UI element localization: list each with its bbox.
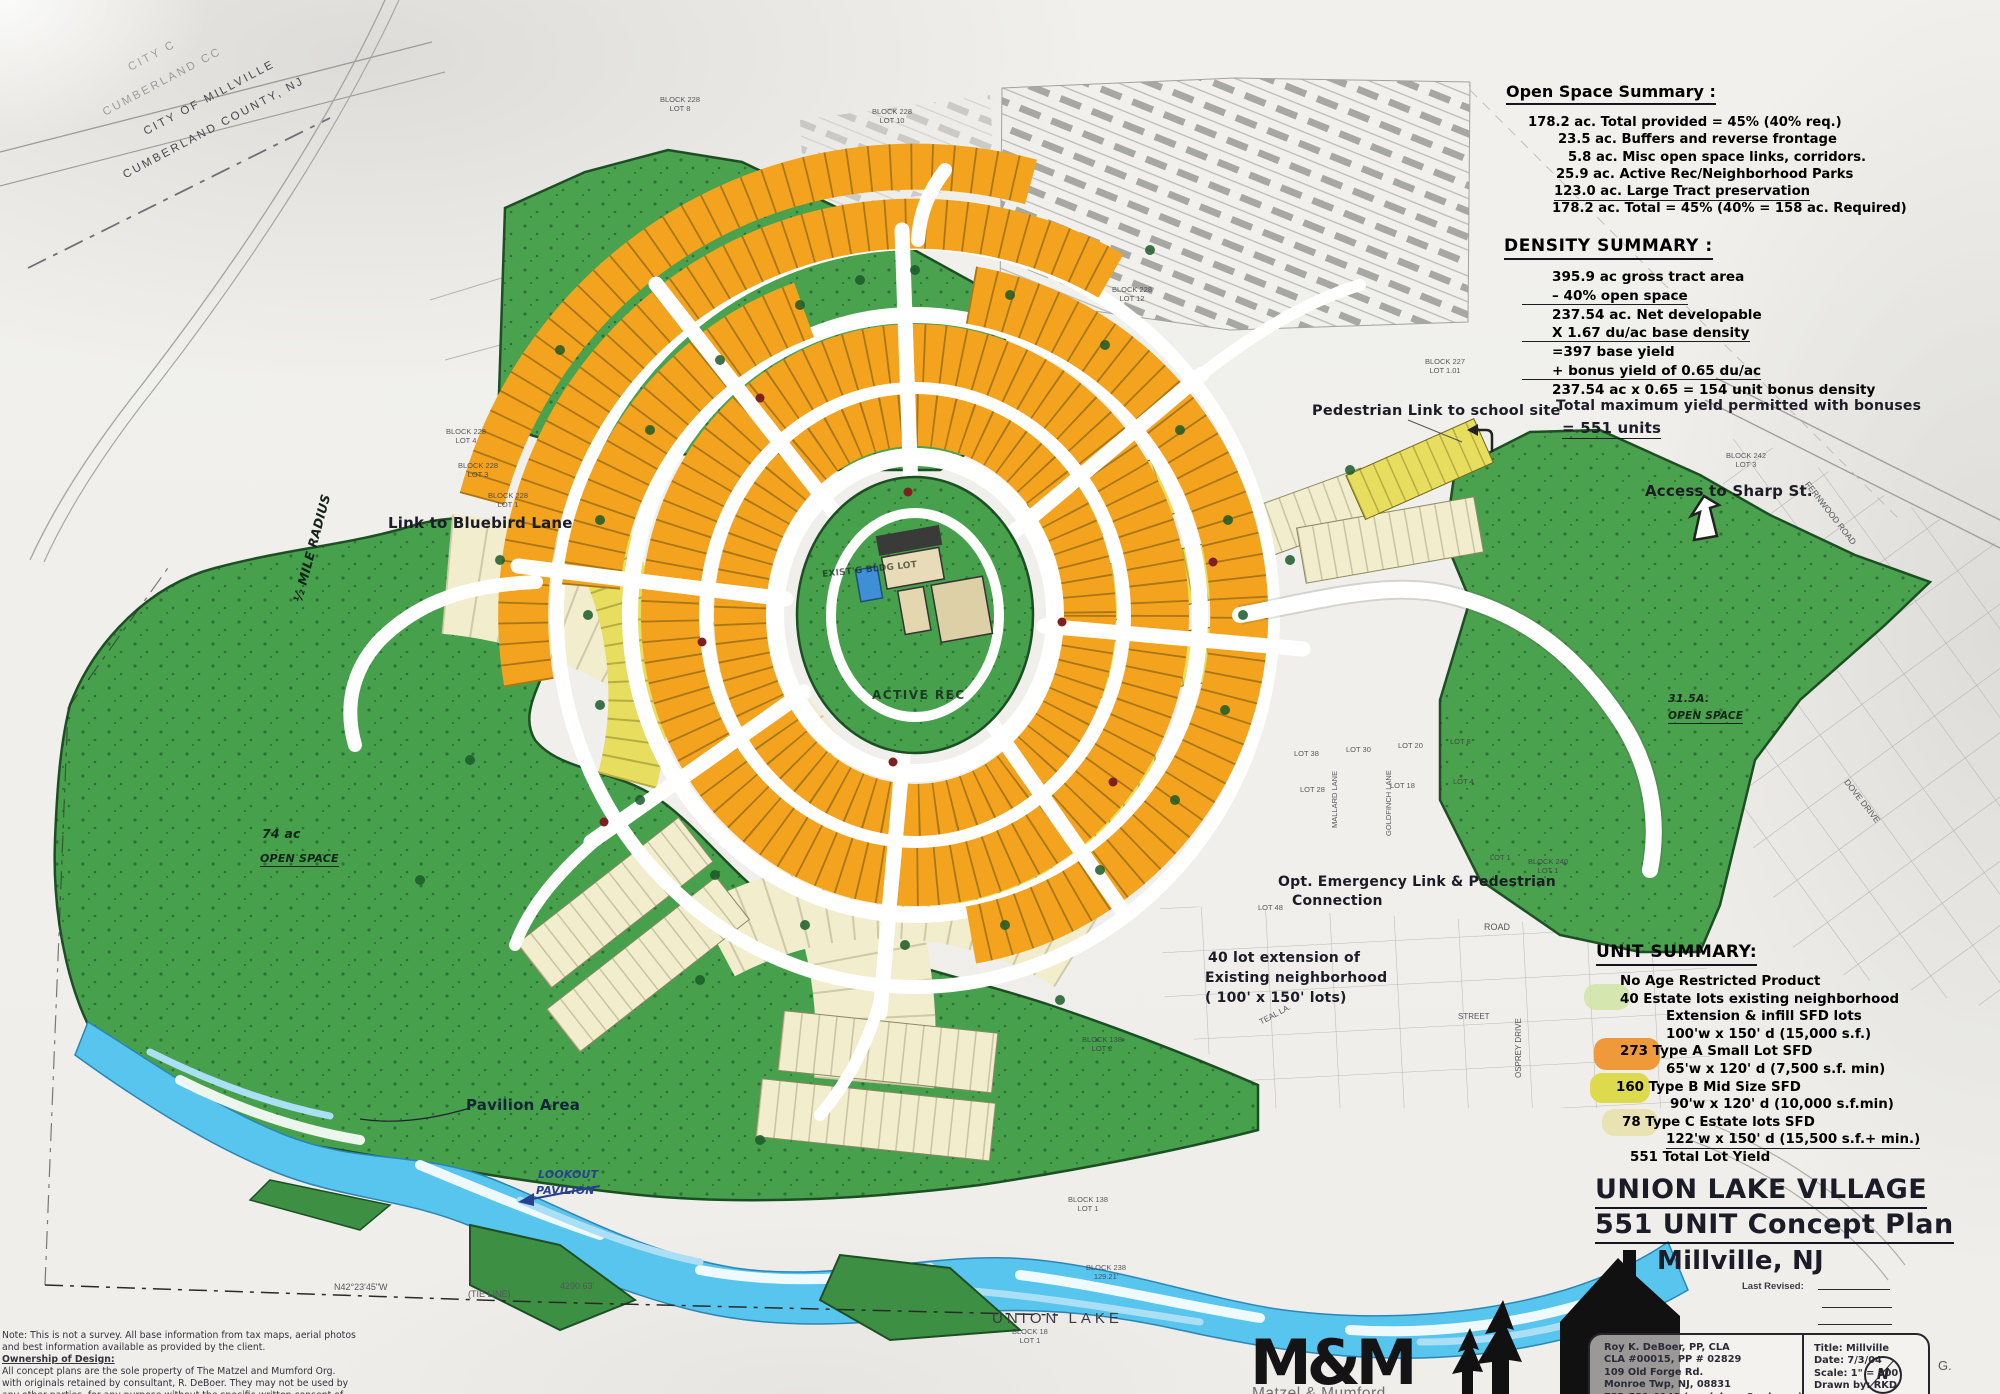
label-74ac: 74 ac (262, 826, 301, 841)
density-line: 395.9 ac gross tract area (1552, 268, 1875, 287)
block-lot-label: BLOCK 138LOT 1 (1068, 1196, 1108, 1213)
block-lot-label: BLOCK 242LOT 3 (1726, 452, 1766, 469)
north-symbol: N (1864, 1356, 1902, 1394)
disclaimer-line: All concept plans are the sole property … (2, 1366, 356, 1378)
disclaimer-note: Note: This is not a survey. All base inf… (2, 1330, 356, 1394)
unit-summary-row: Extension & infill SFD lots (1666, 1008, 1920, 1026)
lot-number: LOT 1 (1490, 854, 1511, 863)
disclaimer-line: Ownership of Design: (2, 1354, 356, 1366)
open-space-line: 178.2 ac. Total = 45% (40% = 158 ac. Req… (1552, 200, 1907, 217)
label-extension-3: ( 100' x 150' lots) (1205, 990, 1347, 1006)
label-extension-1: 40 lot extension of (1208, 950, 1360, 966)
lot-number: LOT 48 (1258, 904, 1283, 913)
last-revised-label: Last Revised: (1742, 1281, 1804, 1292)
center-green (797, 477, 1033, 753)
unit-summary-row: 78 Type C Estate lots SFD (1622, 1114, 1920, 1132)
label-union-lake: UNION LAKE (992, 1310, 1123, 1327)
street-street: STREET (1458, 1012, 1490, 1021)
label-access-sharp: Access to Sharp St. (1645, 482, 1813, 500)
unit-summary-row: 40 Estate lots existing neighborhood (1620, 991, 1920, 1009)
unit-summary-row: 122'w x 150' d (15,500 s.f.+ min.) (1666, 1132, 1920, 1149)
open-space-summary: Open Space Summary : 178.2 ac. Total pro… (1506, 82, 1907, 218)
plan-title-line3: Millville, NJ (1657, 1246, 1824, 1276)
density-line: X 1.67 du/ac base density (1522, 325, 1750, 342)
disclaimer-line: any other parties, for any purpose witho… (2, 1390, 356, 1394)
block-lot-label: BLOCK 228LOT 1 (488, 492, 528, 509)
unit-summary-row: 273 Type A Small Lot SFD (1620, 1043, 1920, 1061)
street-osprey-drive: OSPREY DRIVE (1514, 1018, 1523, 1078)
street-mallard-lane: MALLARD LANE (1330, 771, 1339, 828)
mm-logo-mark: M&M (1250, 1336, 1412, 1390)
label-active-rec: ACTIVE REC (872, 688, 966, 702)
unit-summary-title: UNIT SUMMARY: (1596, 942, 1757, 966)
field-title: Title: Millville (1814, 1343, 1901, 1355)
disclaimer-line: with originals retained by consultant, R… (2, 1378, 356, 1390)
last-revised-line (1818, 1324, 1892, 1325)
concept-plan-sheet: CITY C CUMBERLAND CC CITY OF MILLVILLE C… (0, 0, 2000, 1394)
plan-title-line1: UNION LAKE VILLAGE (1595, 1174, 1927, 1205)
density-line: + bonus yield of 0.65 du/ac (1522, 363, 1761, 380)
density-summary-title: DENSITY SUMMARY : (1504, 236, 1713, 260)
unit-summary-row: No Age Restricted Product (1620, 973, 1920, 991)
block-lot-label: BLOCK 238129.21' (1086, 1264, 1126, 1281)
lot-number: LOT 28 (1300, 786, 1325, 795)
block-lot-label: BLOCK 227LOT 1.01 (1425, 358, 1465, 375)
disclaimer-line: Note: This is not a survey. All base inf… (2, 1330, 356, 1342)
block-lot-label: BLOCK 240LOT 1 (1528, 858, 1568, 875)
unit-summary-row: 65'w x 120' d (7,500 s.f. min) (1666, 1061, 1920, 1079)
unit-summary-row: 100'w x 150' d (15,000 s.f.) (1666, 1026, 1920, 1044)
plan-title-line2: 551 UNIT Concept Plan (1595, 1209, 1954, 1240)
density-line: – 40% open space (1522, 288, 1688, 305)
unit-summary-row: 160 Type B Mid Size SFD (1616, 1079, 1920, 1097)
plan-title-block: UNION LAKE VILLAGE 551 UNIT Concept Plan… (1595, 1174, 1954, 1276)
label-emergency-link-2: Connection (1292, 893, 1383, 909)
g-mark: G. (1938, 1358, 1952, 1373)
density-total-value-text: = 551 units (1562, 419, 1661, 439)
label-pavilion-area: Pavilion Area (466, 1096, 580, 1114)
open-space-line: 23.5 ac. Buffers and reverse frontage (1558, 131, 1907, 148)
survey-tie-line: (TIE LINE) (468, 1289, 511, 1299)
consultant-name: Roy K. DeBoer, PP, CLA (1604, 1342, 1802, 1354)
label-74ac-open-space: OPEN SPACE (260, 852, 339, 865)
consultant-address2: Monroe Twp, NJ, 08831 (1604, 1379, 1802, 1391)
open-space-line: 123.0 ac. Large Tract preservation (1554, 184, 1810, 201)
open-space-line: 178.2 ac. Total provided = 45% (40% req.… (1528, 114, 1907, 131)
disclaimer-line: and best information available as provid… (2, 1342, 356, 1354)
density-summary: DENSITY SUMMARY : 395.9 ac gross tract a… (1504, 236, 1875, 400)
block-lot-label: BLOCK 138LOT 2 (1082, 1036, 1122, 1053)
density-line: 237.54 ac x 0.65 = 154 unit bonus densit… (1552, 381, 1875, 400)
block-lot-label: BLOCK 228LOT 3 (458, 462, 498, 479)
unit-summary-row: 551 Total Lot Yield (1630, 1149, 1920, 1167)
density-total-value: = 551 units (1562, 419, 1661, 437)
label-lookout-1: LOOKOUT (538, 1168, 598, 1181)
survey-distance: 4290.63' (560, 1281, 594, 1291)
consultant-address1: 109 Old Forge Rd. (1604, 1367, 1802, 1379)
density-line: =397 base yield (1552, 343, 1875, 362)
lot-number: LOT 30 (1346, 746, 1371, 755)
label-pedestrian-link: Pedestrian Link to school site (1312, 403, 1561, 419)
street-road: ROAD (1484, 922, 1510, 932)
density-line: 237.54 ac. Net developable (1552, 306, 1875, 325)
mm-logo-name: Matzel & Mumford (1252, 1385, 1386, 1394)
block-lot-label: BLOCK 228LOT 8 (660, 96, 700, 113)
label-315a-open-space: OPEN SPACE (1668, 710, 1743, 722)
block-lot-label: BLOCK 228LOT 12 (1112, 286, 1152, 303)
density-total-note: Total maximum yield permitted with bonus… (1556, 398, 1921, 414)
last-revised-line (1818, 1289, 1890, 1290)
unit-summary: UNIT SUMMARY: No Age Restricted Product … (1596, 942, 1920, 1167)
unit-summary-row: 90'w x 120' d (10,000 s.f.min) (1670, 1096, 1920, 1114)
block-lot-label: BLOCK 228LOT 4 (446, 428, 486, 445)
lot-number: LOT 18 (1390, 782, 1415, 791)
lot-number: LOT 8 (1450, 738, 1471, 747)
last-revised-line (1822, 1307, 1892, 1308)
label-lookout-2: PAVILION (536, 1184, 595, 1197)
open-space-line: 5.8 ac. Misc open space links, corridors… (1568, 149, 1907, 166)
open-space-summary-title: Open Space Summary : (1506, 82, 1716, 105)
label-315a: 31.5A. (1668, 692, 1709, 705)
block-lot-label: BLOCK 18LOT 1 (1012, 1328, 1048, 1345)
survey-bearing: N42°23'45"W (334, 1282, 388, 1292)
label-extension-2: Existing neighborhood (1205, 970, 1387, 986)
lot-number: LOT 38 (1294, 750, 1319, 759)
label-link-bluebird: Link to Bluebird Lane (388, 514, 573, 532)
block-lot-label: BLOCK 228LOT 10 (872, 108, 912, 125)
lot-number: LOT 4 (1453, 778, 1474, 787)
lot-number: LOT 20 (1398, 742, 1423, 751)
label-emergency-link-1: Opt. Emergency Link & Pedestrian (1278, 874, 1556, 890)
consultant-license: CLA #00015, PP # 02829 (1604, 1354, 1802, 1366)
open-space-line: 25.9 ac. Active Rec/Neighborhood Parks (1556, 166, 1907, 183)
